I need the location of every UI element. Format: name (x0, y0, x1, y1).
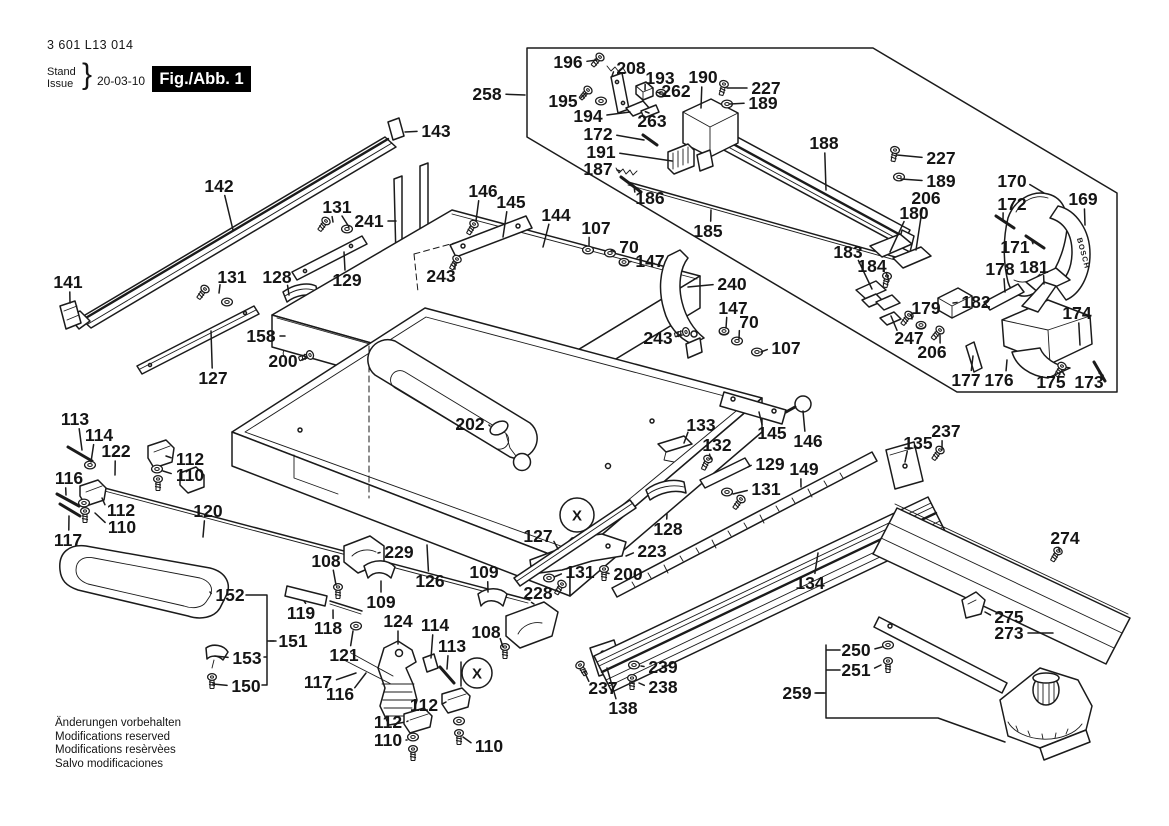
part-callout-133: 133 (686, 415, 715, 435)
part-callout-172: 172 (583, 124, 612, 144)
part-callout-128: 128 (653, 519, 682, 539)
part-callout-108: 108 (471, 622, 500, 642)
part-callout-237: 237 (931, 421, 960, 441)
part-callout-122: 122 (101, 441, 130, 461)
callout-leader-250 (875, 647, 882, 649)
callout-leader-120 (203, 521, 204, 537)
part-callout-250: 250 (841, 640, 870, 660)
callout-leader-114 (91, 445, 94, 462)
part-callout-194: 194 (573, 106, 602, 126)
part-callout-240: 240 (717, 274, 746, 294)
callout-leader-238 (639, 683, 644, 685)
part-callout-158: 158 (246, 326, 275, 346)
part-callout-169: 169 (1068, 189, 1097, 209)
parts-diagram-page: BOSCH (0, 0, 1169, 826)
part-callout-150: 150 (231, 676, 260, 696)
callout-leader-189 (730, 103, 744, 104)
part-callout-110: 110 (374, 730, 402, 750)
notice-line-en: Modifications reserved (55, 731, 181, 745)
part-callout-129: 129 (755, 454, 784, 474)
part-callout-187: 187 (583, 159, 612, 179)
part-callout-146: 146 (468, 181, 497, 201)
callout-leader-117 (336, 673, 356, 680)
part-callout-178: 178 (985, 259, 1014, 279)
part-callout-107: 107 (771, 338, 800, 358)
part-callout-107: 107 (581, 218, 610, 238)
part-callout-186: 186 (635, 188, 664, 208)
part-callout-176: 176 (984, 370, 1013, 390)
exploded-diagram: BOSCH (0, 0, 1169, 826)
callout-leader-172 (617, 135, 644, 140)
stand-issue-labels: Stand Issue (47, 66, 76, 90)
part-callout-110: 110 (176, 465, 204, 485)
part-callout-129: 129 (332, 270, 361, 290)
callout-leader-116 (355, 673, 366, 688)
callout-leader-147 (726, 317, 727, 328)
part-callout-262: 262 (661, 81, 690, 101)
part-callout-238: 238 (648, 677, 677, 697)
callout-leader-147 (629, 261, 631, 262)
part-callout-202: 202 (455, 414, 484, 434)
callout-leader-113 (447, 656, 448, 669)
issue-label: Issue (47, 78, 73, 90)
part-callout-273: 273 (994, 623, 1023, 643)
part-callout-188: 188 (809, 133, 838, 153)
part-callout-196: 196 (553, 52, 582, 72)
part-callout-144: 144 (541, 205, 570, 225)
callout-leader-113 (79, 429, 82, 450)
callout-leader-258 (506, 94, 525, 95)
callout-leader-110 (163, 471, 171, 474)
part-callout-182: 182 (961, 292, 990, 312)
section-marker-label: X (472, 666, 482, 683)
part-callout-228: 228 (523, 583, 552, 603)
part-callout-251: 251 (841, 660, 870, 680)
callout-leader-170 (1030, 185, 1044, 193)
callout-leader-190 (701, 87, 702, 108)
notice-line-es: Salvo modificaciones (55, 758, 181, 772)
part-callout-112: 112 (374, 712, 402, 732)
callout-leader-152 (210, 592, 211, 594)
part-callout-208: 208 (616, 58, 645, 78)
part-callout-258: 258 (472, 84, 501, 104)
part-callout-184: 184 (857, 256, 886, 276)
part-callout-121: 121 (329, 645, 358, 665)
part-callout-259: 259 (782, 683, 811, 703)
part-callout-127: 127 (198, 368, 227, 388)
part-callout-263: 263 (637, 111, 666, 131)
part-callout-243: 243 (643, 328, 672, 348)
callout-leader-110 (95, 513, 105, 522)
callout-leader-112 (407, 721, 408, 722)
callout-leader-196 (587, 60, 597, 61)
part-callout-135: 135 (903, 433, 932, 453)
part-callout-152: 152 (215, 585, 244, 605)
callout-leader-108 (333, 570, 336, 585)
part-callout-109: 109 (469, 562, 498, 582)
part-callout-117: 117 (54, 530, 82, 550)
part-callout-243: 243 (426, 266, 455, 286)
callout-leader-189 (901, 179, 922, 181)
part-callout-239: 239 (648, 657, 677, 677)
callout-leader-223 (626, 553, 633, 556)
part-callout-131: 131 (565, 562, 594, 582)
part-callout-173: 173 (1074, 372, 1103, 392)
part-callout-120: 120 (193, 501, 222, 521)
part-callout-146: 146 (793, 431, 822, 451)
modification-notice: Änderungen vorbehalten Modifications res… (55, 717, 181, 771)
callout-leader-146 (803, 411, 805, 431)
part-callout-151: 151 (278, 631, 307, 651)
part-callout-127: 127 (523, 526, 552, 546)
part-callout-119: 119 (287, 603, 315, 623)
callout-leader-129 (344, 252, 345, 270)
callout-leader-171 (1032, 241, 1033, 244)
part-callout-145: 145 (757, 423, 786, 443)
part-callout-131: 131 (322, 197, 351, 217)
part-callout-141: 141 (53, 272, 82, 292)
part-callout-110: 110 (475, 736, 503, 756)
stand-label: Stand (47, 66, 76, 78)
part-callout-124: 124 (383, 611, 412, 631)
part-callout-174: 174 (1062, 303, 1091, 323)
figure-label: Fig./Abb. 1 (159, 70, 243, 89)
part-callout-170: 170 (997, 171, 1026, 191)
part-callout-131: 131 (217, 267, 246, 287)
issue-date: 20-03-10 (97, 74, 145, 88)
part-callout-143: 143 (421, 121, 450, 141)
notice-line-de: Änderungen vorbehalten (55, 717, 181, 731)
callout-leader-200 (607, 573, 609, 574)
callout-leader-187 (617, 170, 620, 171)
part-callout-175: 175 (1036, 372, 1065, 392)
part-callout-229: 229 (384, 542, 413, 562)
part-callout-138: 138 (608, 698, 637, 718)
callout-leader-239 (641, 666, 644, 667)
part-callout-112: 112 (410, 695, 438, 715)
callout-leader-182 (953, 302, 957, 303)
figure-label-box: Fig./Abb. 1 (152, 66, 251, 92)
part-callout-241: 241 (354, 211, 383, 231)
callout-leader-227 (897, 155, 922, 157)
part-callout-149: 149 (789, 459, 818, 479)
callout-leader-169 (1084, 209, 1085, 225)
callout-leader-142 (225, 196, 233, 230)
callout-leader-121 (351, 631, 353, 646)
callout-leader-251 (875, 665, 881, 668)
section-marker-label: X (572, 508, 582, 525)
part-callout-116: 116 (326, 684, 354, 704)
callout-leader-202 (489, 425, 490, 426)
callout-leader-131 (733, 490, 747, 494)
part-callout-172: 172 (997, 194, 1026, 214)
part-callout-179: 179 (911, 298, 940, 318)
part-callout-126: 126 (415, 571, 444, 591)
callout-leader-178 (1004, 279, 1005, 292)
part-callout-113: 113 (438, 636, 466, 656)
part-callout-142: 142 (204, 176, 233, 196)
part-callout-206: 206 (917, 342, 946, 362)
part-callout-116: 116 (55, 468, 83, 488)
part-callout-132: 132 (702, 435, 731, 455)
callout-leader-143 (405, 131, 417, 132)
part-callout-223: 223 (637, 541, 666, 561)
part-callout-145: 145 (496, 192, 525, 212)
part-callout-274: 274 (1050, 528, 1079, 548)
part-callout-128: 128 (262, 267, 291, 287)
part-callout-177: 177 (951, 370, 980, 390)
callout-leader-110 (463, 737, 471, 743)
part-callout-171: 171 (1000, 237, 1029, 257)
part-callout-147: 147 (635, 251, 664, 271)
callout-leader-131 (332, 217, 333, 222)
part-callout-153: 153 (232, 648, 261, 668)
part-callout-108: 108 (311, 551, 340, 571)
part-callout-185: 185 (693, 221, 722, 241)
part-callout-110: 110 (108, 517, 136, 537)
callout-leader-229 (378, 552, 380, 553)
callout-leader-150 (213, 684, 227, 685)
part-callout-180: 180 (899, 203, 928, 223)
part-callout-114: 114 (421, 615, 449, 635)
part-callout-131: 131 (751, 479, 780, 499)
callout-leader-191 (620, 153, 672, 161)
part-callout-190: 190 (688, 67, 717, 87)
part-callout-134: 134 (795, 573, 824, 593)
part-callout-200: 200 (268, 351, 297, 371)
part-callout-189: 189 (748, 93, 777, 113)
part-callout-227: 227 (926, 148, 955, 168)
part-callout-109: 109 (366, 592, 395, 612)
document-part-number: 3 601 L13 014 (47, 38, 133, 52)
part-callout-181: 181 (1019, 257, 1048, 277)
part-callout-70: 70 (739, 312, 759, 332)
notice-line-fr: Modifications resèrvèes (55, 744, 181, 758)
part-callout-118: 118 (314, 618, 342, 638)
part-callout-200: 200 (613, 564, 642, 584)
callout-leader-126 (427, 545, 428, 571)
callout-leader-275 (985, 612, 990, 615)
brace-glyph: } (82, 58, 92, 92)
